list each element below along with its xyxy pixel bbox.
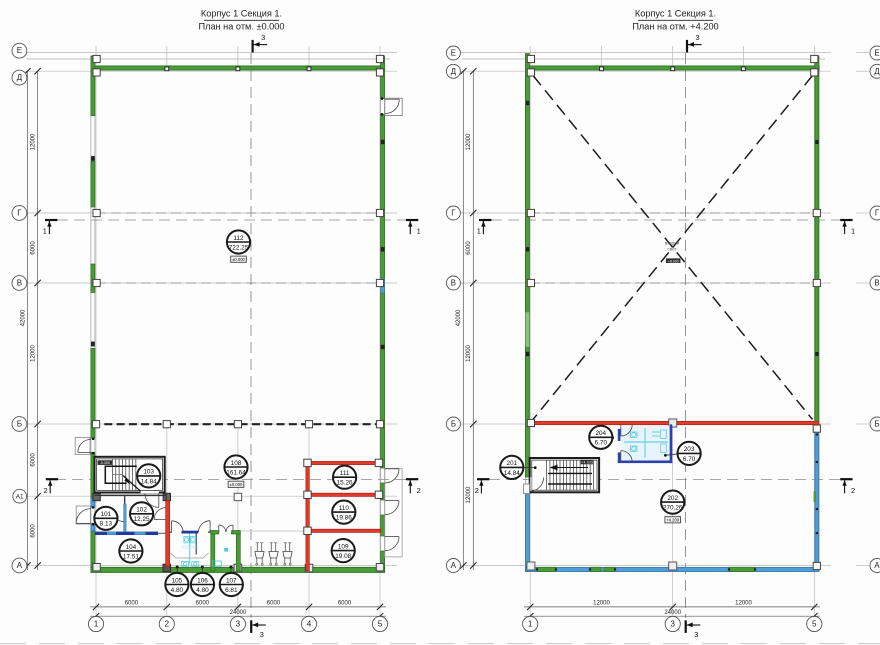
svg-text:Д: Д <box>451 67 457 76</box>
svg-text:А: А <box>451 561 457 570</box>
svg-text:2: 2 <box>165 620 170 629</box>
svg-text:Г: Г <box>17 209 22 218</box>
svg-text:161.64: 161.64 <box>226 469 246 476</box>
svg-text:3: 3 <box>261 33 265 42</box>
svg-text:свет: свет <box>667 247 677 252</box>
svg-text:Б: Б <box>874 420 879 429</box>
svg-text:12000: 12000 <box>735 601 752 607</box>
svg-text:24000: 24000 <box>664 610 681 616</box>
svg-text:План на отм. ±0.000: План на отм. ±0.000 <box>198 22 284 32</box>
svg-text:101: 101 <box>101 511 112 518</box>
svg-text:202: 202 <box>667 495 678 502</box>
svg-text:8.13: 8.13 <box>100 521 113 528</box>
svg-text:270.26: 270.26 <box>663 505 683 512</box>
svg-text:42000: 42000 <box>20 309 26 326</box>
svg-text:12000: 12000 <box>593 601 610 607</box>
svg-text:В: В <box>874 279 879 288</box>
svg-text:12000: 12000 <box>466 486 472 503</box>
svg-text:6000: 6000 <box>30 453 36 467</box>
svg-text:3: 3 <box>670 620 675 629</box>
svg-text:6.81: 6.81 <box>225 587 238 594</box>
svg-text:107: 107 <box>226 577 237 584</box>
svg-text:Е: Е <box>874 49 879 58</box>
svg-text:6.70: 6.70 <box>683 456 696 463</box>
svg-text:12000: 12000 <box>466 344 472 361</box>
svg-text:102: 102 <box>136 507 147 514</box>
svg-text:+4.200: +4.200 <box>666 518 680 523</box>
svg-text:112: 112 <box>233 235 244 242</box>
svg-text:Б: Б <box>17 420 22 429</box>
svg-text:105: 105 <box>172 577 183 584</box>
svg-text:Д: Д <box>17 73 23 82</box>
svg-text:1: 1 <box>477 227 481 236</box>
svg-text:1: 1 <box>417 227 421 236</box>
svg-text:42000: 42000 <box>456 309 462 326</box>
svg-text:А1: А1 <box>16 494 24 501</box>
svg-text:Е: Е <box>17 46 22 55</box>
svg-text:1: 1 <box>528 620 533 629</box>
svg-text:2: 2 <box>475 486 479 495</box>
svg-text:1: 1 <box>851 227 855 236</box>
svg-text:111: 111 <box>340 470 350 477</box>
svg-text:201: 201 <box>506 460 517 467</box>
svg-text:А: А <box>17 561 23 570</box>
svg-text:12000: 12000 <box>30 133 36 150</box>
svg-text:Корпус 1 Секция 1.: Корпус 1 Секция 1. <box>201 9 282 19</box>
svg-text:17.51: 17.51 <box>123 553 139 560</box>
svg-text:4.80: 4.80 <box>196 587 209 594</box>
svg-text:1: 1 <box>94 620 99 629</box>
svg-text:110: 110 <box>339 505 350 512</box>
svg-text:3: 3 <box>260 630 264 639</box>
svg-text:Д: Д <box>874 67 880 76</box>
svg-text:±0.000: ±0.000 <box>230 482 243 487</box>
svg-text:12000: 12000 <box>30 344 36 361</box>
svg-text:14.84: 14.84 <box>141 478 157 485</box>
svg-text:204: 204 <box>595 430 606 437</box>
svg-text:6000: 6000 <box>196 601 210 607</box>
svg-text:5: 5 <box>378 620 383 629</box>
svg-text:103: 103 <box>143 469 154 476</box>
svg-text:6000: 6000 <box>338 601 352 607</box>
svg-text:2: 2 <box>851 486 855 495</box>
svg-text:6000: 6000 <box>267 601 281 607</box>
svg-text:19.86: 19.86 <box>336 515 352 522</box>
svg-text:108: 108 <box>231 460 242 467</box>
svg-text:106: 106 <box>197 577 208 584</box>
svg-text:второй: второй <box>665 240 680 246</box>
svg-text:А: А <box>874 561 880 570</box>
svg-text:3: 3 <box>694 630 698 639</box>
svg-text:24000: 24000 <box>230 610 247 616</box>
svg-text:6000: 6000 <box>30 524 36 538</box>
svg-text:2: 2 <box>417 486 421 495</box>
svg-text:14.84: 14.84 <box>504 470 520 477</box>
svg-text:12.25: 12.25 <box>134 516 150 523</box>
svg-text:15.26: 15.26 <box>337 480 353 487</box>
svg-text:6000: 6000 <box>30 241 36 255</box>
svg-text:5: 5 <box>812 620 817 629</box>
svg-text:6.70: 6.70 <box>595 440 608 447</box>
svg-text:4.80: 4.80 <box>171 587 184 594</box>
svg-text:203: 203 <box>684 446 695 453</box>
svg-text:В: В <box>451 279 456 288</box>
svg-text:Б: Б <box>451 420 456 429</box>
svg-text:2: 2 <box>44 486 48 495</box>
svg-text:+8.000: +8.000 <box>668 259 679 263</box>
svg-text:19.08: 19.08 <box>335 553 351 560</box>
svg-text:-0.300: -0.300 <box>100 461 110 465</box>
svg-text:104: 104 <box>126 544 137 551</box>
svg-text:±0.000: ±0.000 <box>232 257 245 262</box>
svg-text:План на отм. +4.200: План на отм. +4.200 <box>632 22 718 32</box>
svg-text:6000: 6000 <box>125 601 139 607</box>
svg-text:3: 3 <box>696 33 700 42</box>
svg-text:722.25: 722.25 <box>229 244 249 251</box>
svg-text:6000: 6000 <box>466 241 472 255</box>
svg-text:Корпус 1 Секция 1.: Корпус 1 Секция 1. <box>635 9 716 19</box>
svg-text:Е: Е <box>451 49 456 58</box>
svg-text:В: В <box>17 279 22 288</box>
svg-text:109: 109 <box>338 543 349 550</box>
svg-text:4: 4 <box>307 620 312 629</box>
svg-text:1: 1 <box>43 227 47 236</box>
svg-text:3: 3 <box>236 620 241 629</box>
svg-text:12000: 12000 <box>466 133 472 150</box>
